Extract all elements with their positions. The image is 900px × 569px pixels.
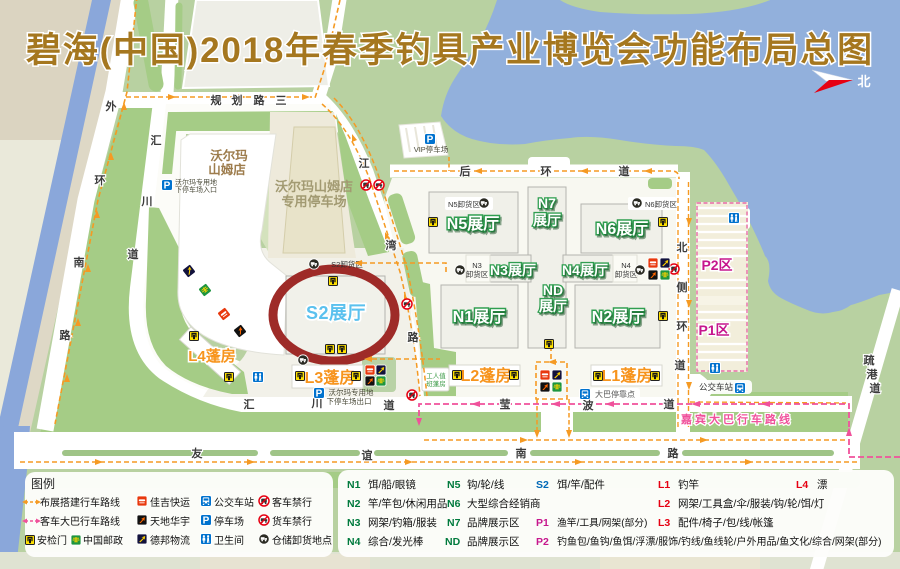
- svg-text:环: 环: [677, 320, 688, 333]
- svg-text:图例: 图例: [31, 477, 55, 491]
- svg-text:疏: 疏: [864, 353, 875, 367]
- svg-text:P2区: P2区: [701, 257, 732, 273]
- svg-text:品牌展示区: 品牌展示区: [467, 516, 520, 529]
- svg-text:N2展厅: N2展厅: [592, 308, 644, 326]
- svg-text:L4蓬房: L4蓬房: [188, 347, 236, 365]
- svg-text:N3展厅: N3展厅: [490, 262, 536, 278]
- svg-text:规: 规: [211, 93, 222, 107]
- svg-text:道: 道: [664, 397, 675, 411]
- svg-text:德邦物流: 德邦物流: [150, 534, 190, 547]
- svg-text:客车禁行: 客车禁行: [272, 496, 312, 509]
- svg-text:道: 道: [619, 164, 630, 178]
- svg-text:卸货区: 卸货区: [466, 269, 489, 279]
- svg-text:饵/竿/配件: 饵/竿/配件: [557, 478, 605, 491]
- svg-text:N1展厅: N1展厅: [453, 308, 505, 326]
- svg-text:N3: N3: [472, 261, 482, 270]
- svg-text:客车大巴行车路线: 客车大巴行车路线: [40, 515, 120, 528]
- svg-text:汇: 汇: [244, 398, 255, 411]
- svg-text:L4: L4: [796, 479, 808, 491]
- svg-text:N6展厅: N6展厅: [596, 220, 648, 238]
- svg-text:波: 波: [583, 398, 595, 412]
- svg-text:布展搭建行车路线: 布展搭建行车路线: [40, 496, 120, 509]
- svg-text:卸货区: 卸货区: [615, 269, 638, 279]
- svg-text:南: 南: [74, 255, 85, 269]
- svg-text:N4: N4: [621, 261, 631, 270]
- svg-text:专用停车场: 专用停车场: [281, 194, 346, 209]
- svg-text:ND: ND: [445, 536, 461, 548]
- svg-text:仓储卸货地点: 仓储卸货地点: [272, 534, 332, 547]
- svg-text:展厅: 展厅: [539, 298, 567, 314]
- svg-text:班蓬房: 班蓬房: [426, 379, 446, 388]
- svg-text:展厅: 展厅: [533, 212, 561, 228]
- svg-text:碧海(中国)2018年春季钓具产业博览会功能布局总图: 碧海(中国)2018年春季钓具产业博览会功能布局总图: [26, 31, 874, 70]
- svg-text:N6卸货区: N6卸货区: [645, 199, 678, 209]
- svg-text:品牌展示区: 品牌展示区: [467, 535, 520, 548]
- svg-text:L2: L2: [658, 498, 670, 510]
- svg-text:P2: P2: [536, 536, 549, 548]
- svg-text:竿/竿包/休闲用品: 竿/竿包/休闲用品: [368, 497, 447, 510]
- svg-text:侧: 侧: [677, 280, 688, 294]
- svg-text:路: 路: [668, 446, 680, 460]
- svg-text:路: 路: [408, 330, 420, 344]
- svg-text:N7: N7: [538, 195, 556, 211]
- svg-text:货车禁行: 货车禁行: [272, 515, 312, 528]
- svg-text:N4展厅: N4展厅: [562, 262, 608, 278]
- svg-text:钓鱼包/鱼钩/鱼饵/浮漂/服饰/钓线/鱼线轮/户外用品/鱼文: 钓鱼包/鱼钩/鱼饵/浮漂/服饰/钓线/鱼线轮/户外用品/鱼文化/综合/网架(部分…: [557, 535, 881, 548]
- svg-text:停车场: 停车场: [214, 515, 244, 528]
- svg-text:N6: N6: [447, 498, 461, 510]
- svg-text:L1蓬房: L1蓬房: [602, 366, 653, 385]
- svg-text:N7: N7: [447, 517, 461, 529]
- svg-text:沃尔玛专用地: 沃尔玛专用地: [175, 178, 217, 187]
- svg-text:路: 路: [254, 93, 266, 107]
- svg-text:安检门: 安检门: [37, 534, 67, 547]
- svg-text:漂: 漂: [817, 479, 828, 491]
- svg-text:N3: N3: [347, 517, 361, 529]
- svg-text:北: 北: [857, 74, 870, 89]
- svg-text:山姆店: 山姆店: [208, 162, 246, 177]
- svg-text:S2展厅: S2展厅: [306, 303, 366, 323]
- svg-text:L3蓬房: L3蓬房: [305, 368, 356, 387]
- svg-text:三: 三: [276, 94, 287, 107]
- svg-text:天地华宇: 天地华宇: [150, 515, 190, 528]
- svg-text:汇: 汇: [151, 134, 162, 147]
- svg-text:道: 道: [675, 358, 686, 372]
- svg-text:N5卸货区: N5卸货区: [448, 199, 481, 209]
- svg-text:配件/椅子/包/线/帐篷: 配件/椅子/包/线/帐篷: [678, 516, 774, 529]
- svg-text:钓竿: 钓竿: [678, 478, 699, 491]
- svg-text:网架/钓箱/服装: 网架/钓箱/服装: [368, 516, 437, 529]
- svg-text:P1区: P1区: [698, 322, 729, 338]
- svg-text:划: 划: [232, 93, 243, 107]
- svg-text:北: 北: [677, 240, 688, 254]
- svg-text:江: 江: [359, 156, 370, 170]
- svg-text:公交车站: 公交车站: [699, 382, 734, 392]
- svg-text:大型综合经销商: 大型综合经销商: [467, 497, 541, 510]
- svg-text:环: 环: [95, 174, 106, 187]
- svg-text:网架/工具盒/伞/服装/钩/轮/饵/灯: 网架/工具盒/伞/服装/钩/轮/饵/灯: [678, 497, 825, 510]
- svg-text:沃尔玛山姆店: 沃尔玛山姆店: [275, 179, 353, 194]
- svg-text:道: 道: [384, 398, 395, 412]
- svg-text:N5展厅: N5展厅: [447, 215, 499, 233]
- svg-text:谊: 谊: [362, 448, 373, 462]
- svg-text:N2: N2: [347, 498, 361, 510]
- svg-text:综合/发光棒: 综合/发光棒: [368, 535, 424, 548]
- svg-text:南: 南: [516, 446, 527, 460]
- svg-text:下停车场入口: 下停车场入口: [175, 185, 217, 194]
- svg-text:道: 道: [870, 381, 881, 395]
- svg-text:N1: N1: [347, 479, 361, 491]
- svg-text:中国邮政: 中国邮政: [83, 534, 123, 547]
- svg-text:川: 川: [141, 195, 153, 208]
- svg-text:外: 外: [105, 99, 117, 113]
- svg-text:ND: ND: [543, 282, 563, 298]
- svg-text:渔竿/工具/网架(部分): 渔竿/工具/网架(部分): [557, 516, 647, 529]
- svg-text:L2蓬房: L2蓬房: [461, 366, 512, 385]
- svg-text:环: 环: [541, 165, 552, 178]
- svg-text:大巴停靠点: 大巴停靠点: [595, 389, 635, 399]
- svg-text:N5: N5: [447, 479, 461, 491]
- svg-text:嘉宾大巴行车路线: 嘉宾大巴行车路线: [680, 412, 793, 426]
- svg-text:佳吉快运: 佳吉快运: [150, 496, 190, 509]
- svg-text:友: 友: [192, 446, 203, 460]
- svg-text:卫生间: 卫生间: [214, 534, 244, 547]
- svg-text:工人值: 工人值: [426, 371, 446, 380]
- svg-text:湾: 湾: [386, 238, 397, 252]
- svg-text:N4: N4: [347, 536, 361, 548]
- svg-text:道: 道: [128, 247, 139, 261]
- svg-text:港: 港: [867, 367, 879, 381]
- svg-text:沃尔玛专用地: 沃尔玛专用地: [329, 387, 374, 397]
- svg-text:后: 后: [460, 164, 471, 178]
- svg-text:下停车场出口: 下停车场出口: [327, 396, 372, 406]
- svg-text:饵/船/眼镜: 饵/船/眼镜: [368, 478, 416, 491]
- svg-text:钩/轮/线: 钩/轮/线: [467, 478, 505, 491]
- svg-text:路: 路: [60, 328, 72, 342]
- svg-text:沃尔玛: 沃尔玛: [210, 148, 248, 163]
- svg-text:S2: S2: [536, 479, 549, 491]
- svg-text:公交车站: 公交车站: [214, 496, 254, 509]
- svg-text:莹: 莹: [500, 397, 511, 411]
- svg-text:L3: L3: [658, 517, 670, 529]
- svg-text:L1: L1: [658, 479, 670, 491]
- svg-text:P1: P1: [536, 517, 549, 529]
